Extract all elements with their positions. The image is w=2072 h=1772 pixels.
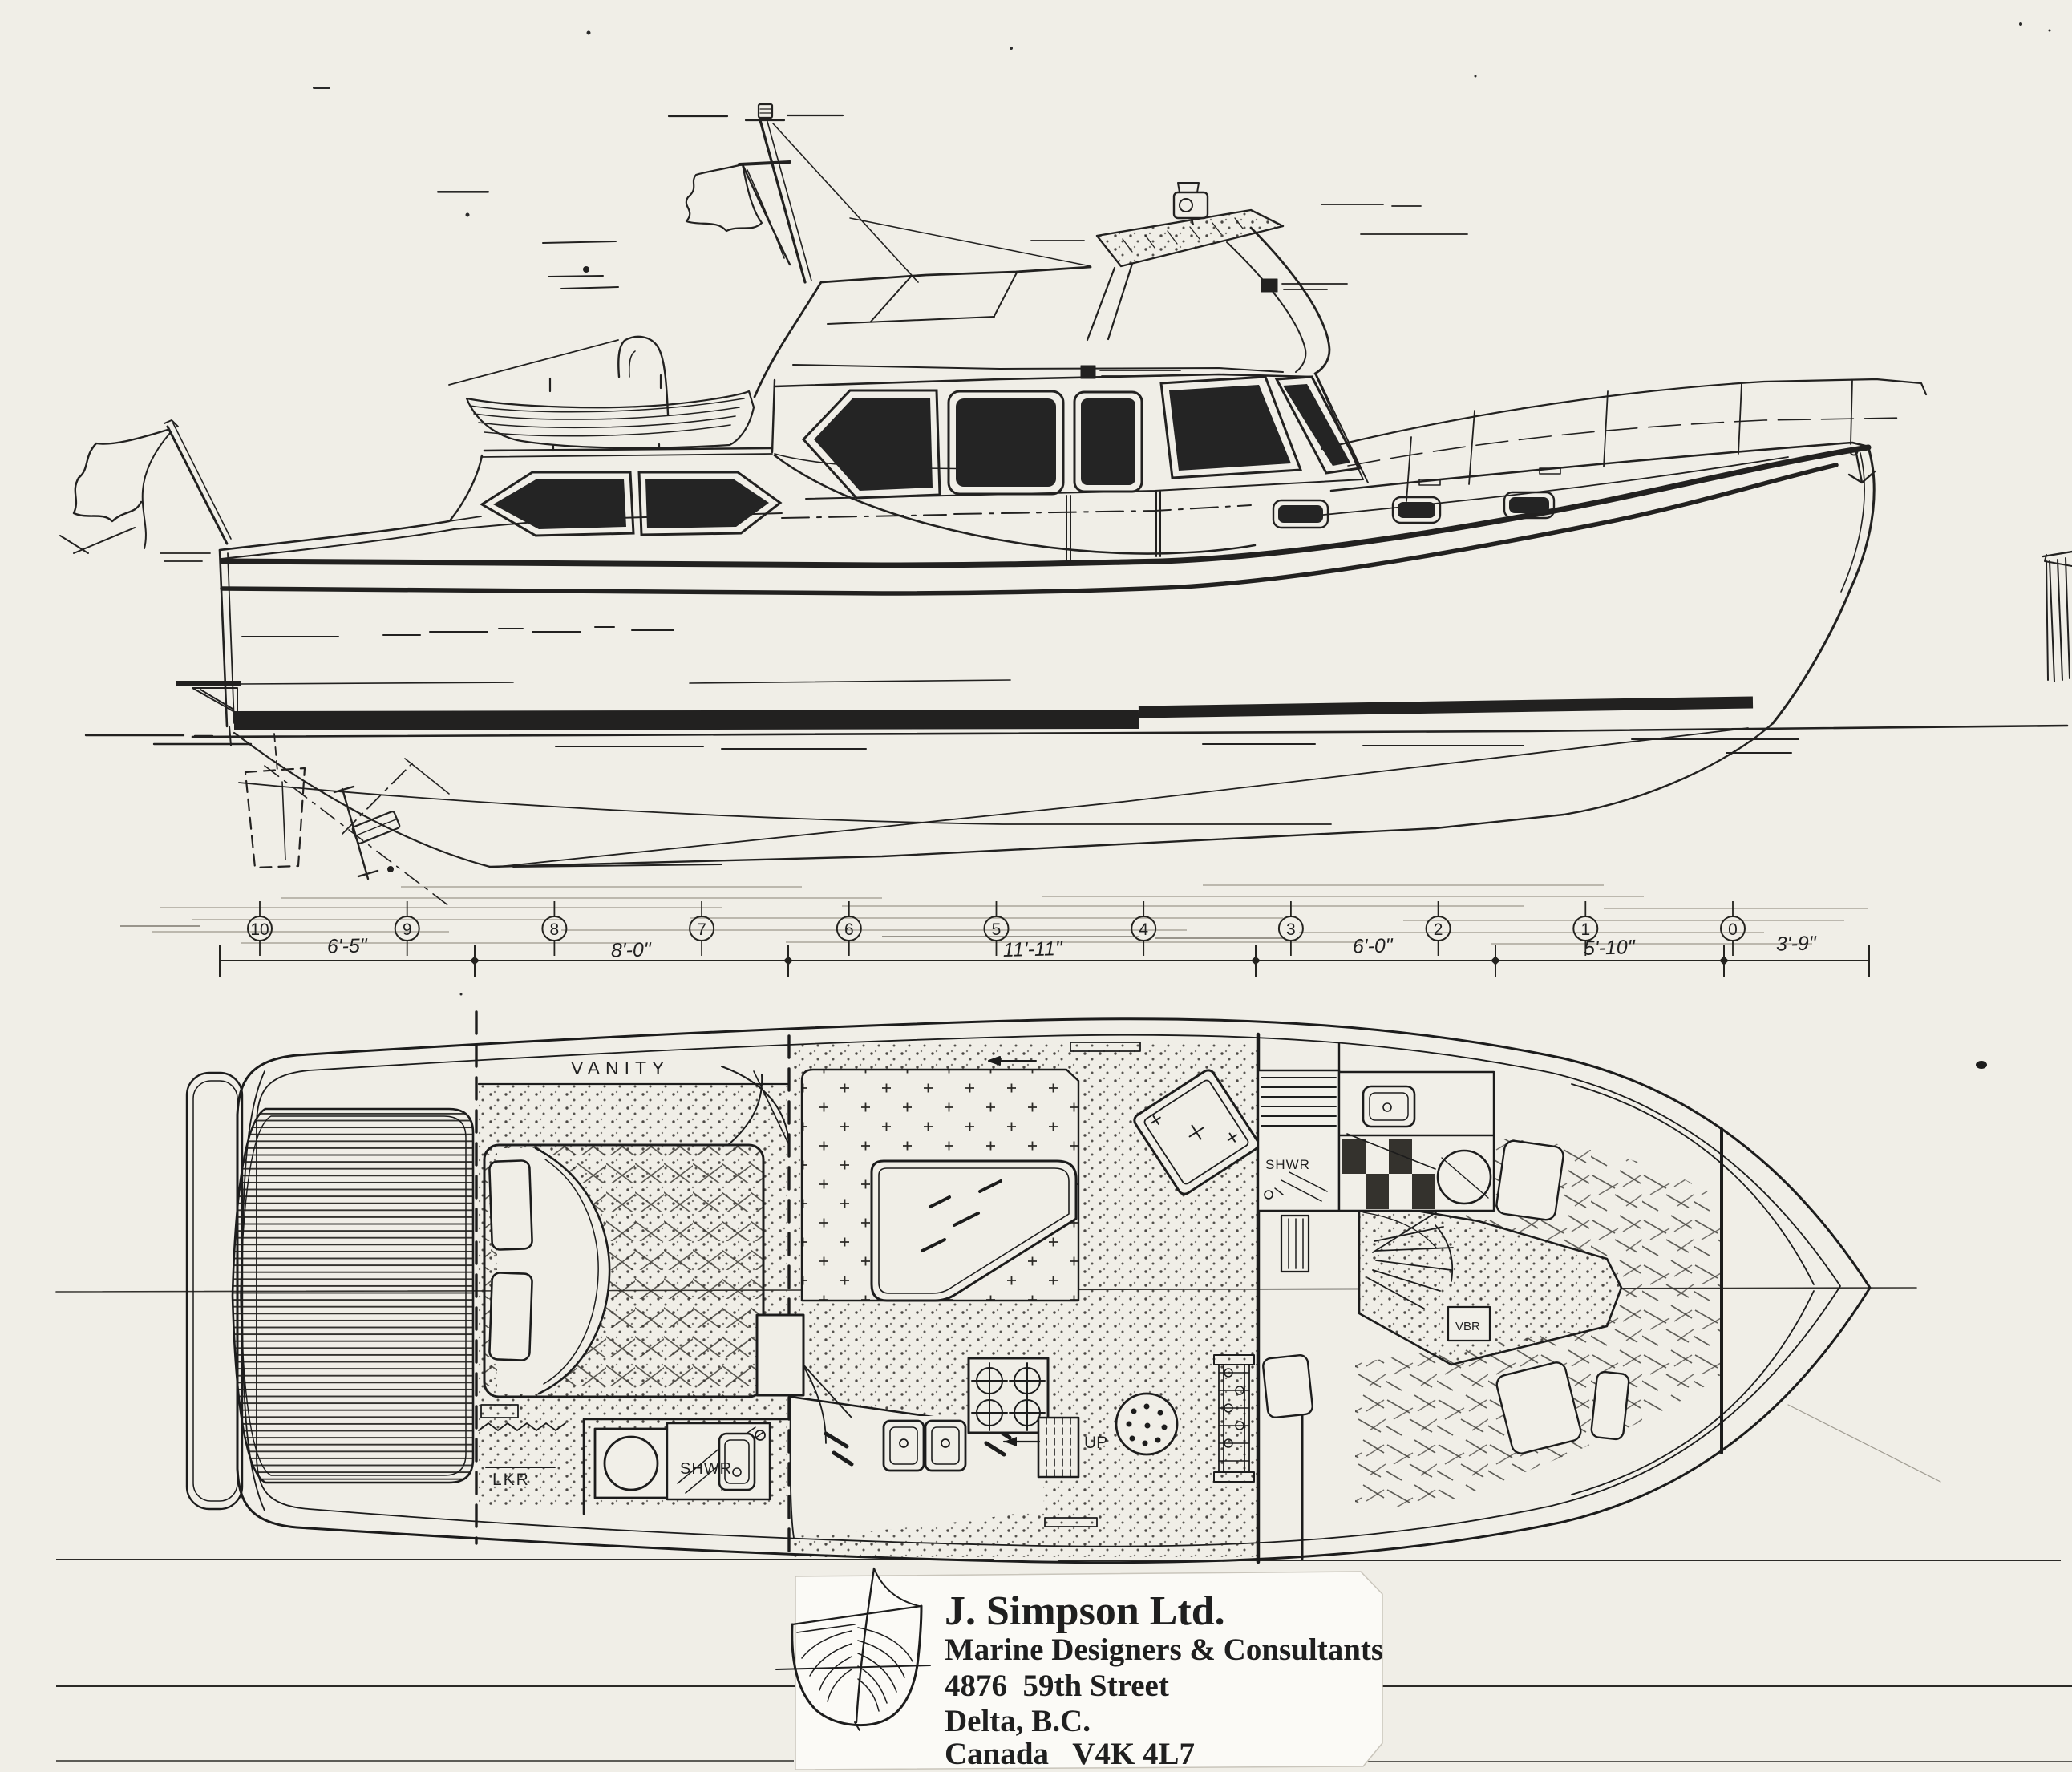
svg-text:8: 8: [550, 920, 560, 939]
svg-text:0: 0: [1728, 920, 1738, 939]
svg-text:VBR: VBR: [1455, 1320, 1480, 1333]
svg-text:9: 9: [403, 920, 412, 939]
svg-text:7: 7: [697, 920, 706, 939]
svg-text:LKR: LKR: [492, 1471, 530, 1489]
svg-text:Canada V4K 4L7: Canada V4K 4L7: [945, 1737, 1195, 1771]
svg-text:3'-9": 3'-9": [1776, 932, 1818, 955]
svg-text:4876 59th Street: 4876 59th Street: [945, 1669, 1169, 1703]
svg-text:Marine Designers & Consultants: Marine Designers & Consultants: [945, 1632, 1383, 1667]
svg-text:6'-5": 6'-5": [327, 934, 369, 957]
svg-text:4: 4: [1139, 920, 1148, 939]
svg-text:3: 3: [1286, 920, 1296, 939]
svg-text:SHWR: SHWR: [1265, 1157, 1310, 1172]
svg-text:Delta, B.C.: Delta, B.C.: [945, 1704, 1091, 1738]
svg-text:1: 1: [1580, 920, 1590, 939]
svg-text:UP: UP: [1084, 1434, 1107, 1452]
svg-text:6: 6: [844, 920, 854, 939]
svg-text:2: 2: [1434, 920, 1443, 939]
svg-text:SHWR: SHWR: [680, 1460, 732, 1478]
svg-text:10: 10: [250, 920, 269, 939]
svg-text:VANITY: VANITY: [571, 1058, 670, 1078]
svg-text:J. Simpson Ltd.: J. Simpson Ltd.: [945, 1588, 1225, 1634]
svg-text:5: 5: [992, 920, 1002, 939]
svg-text:8'-0": 8'-0": [611, 938, 653, 961]
svg-text:11'-11": 11'-11": [1002, 937, 1063, 961]
svg-text:6'-0": 6'-0": [1353, 934, 1394, 957]
svg-text:5'-10": 5'-10": [1584, 936, 1637, 960]
